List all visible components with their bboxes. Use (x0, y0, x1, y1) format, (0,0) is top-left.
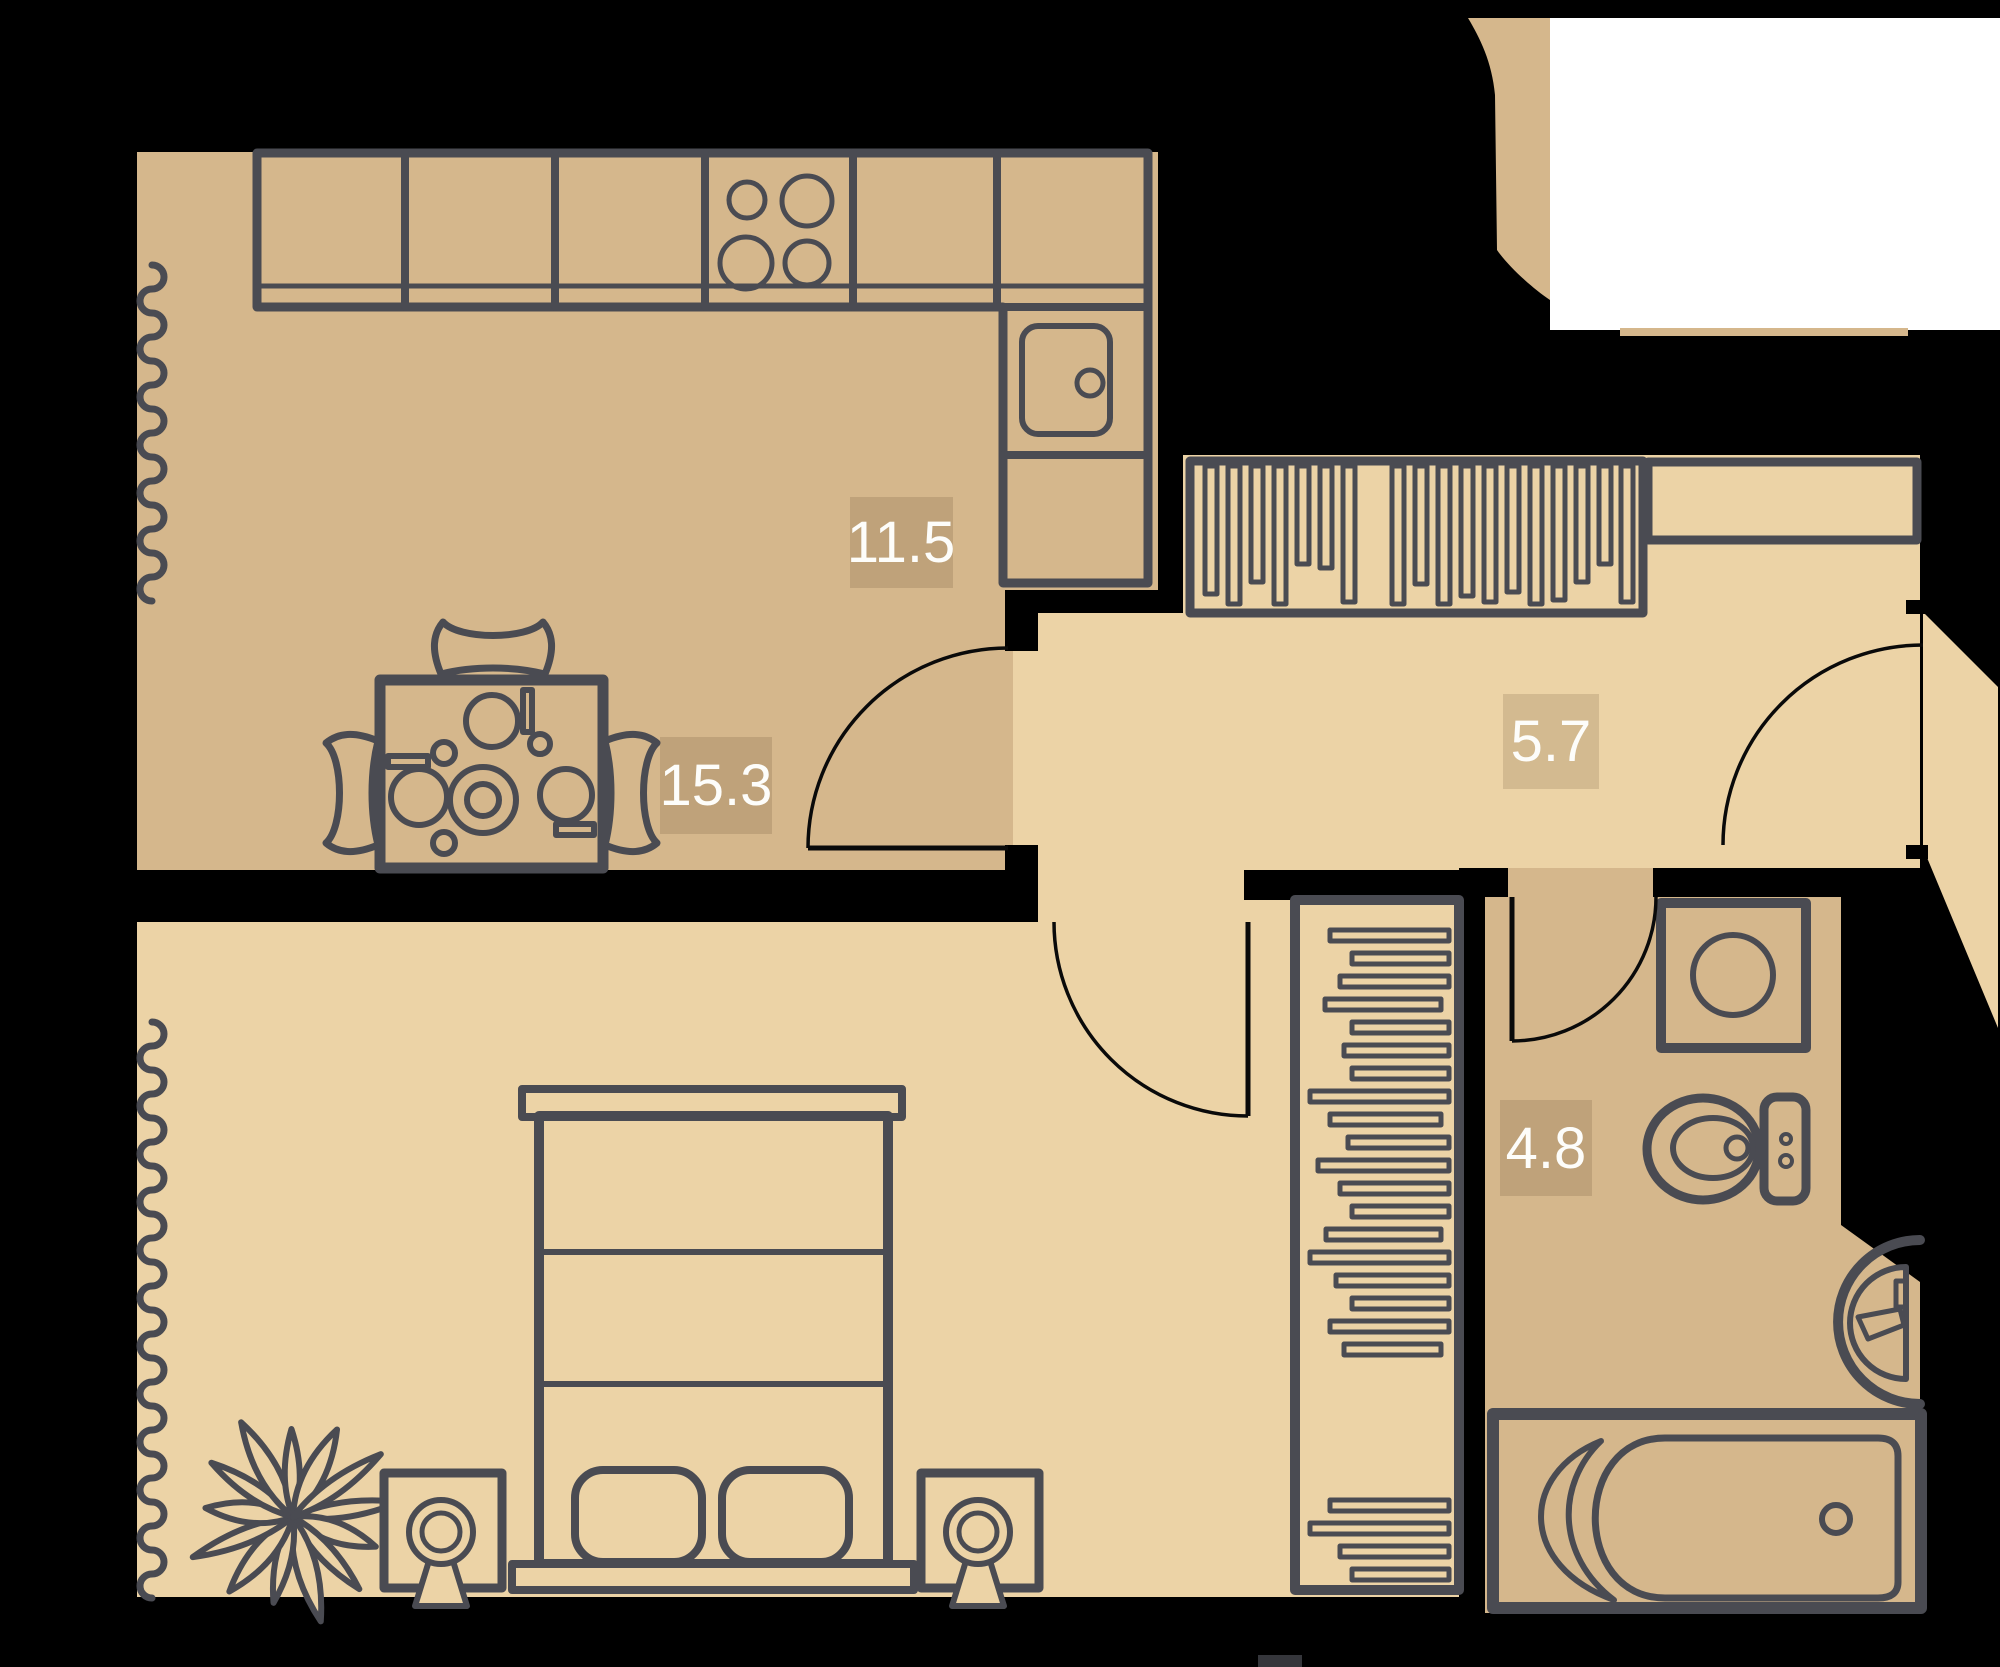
adjacent-wall-curve (1468, 18, 1550, 300)
bed-foot-bar (512, 1564, 914, 1590)
bathroom-door-threshold (1508, 868, 1653, 898)
area-value: 4.8 (1506, 1116, 1587, 1181)
area-value: 5.7 (1511, 709, 1592, 774)
nightstand-left (384, 1473, 502, 1606)
wall-kitchen-hallway (1005, 590, 1183, 613)
kitchen-door-jamb-top (1005, 613, 1038, 651)
room-label-hallway: 5.7 (1503, 694, 1599, 789)
entrance-jamb-bottom (1906, 845, 1928, 859)
area-value: 15.3 (660, 753, 773, 818)
kitchen-door-jamb-bottom (1005, 845, 1038, 872)
toilet-tank (1764, 1097, 1806, 1201)
floor-plan: 11.5 5.7 15.3 4.8 (0, 0, 2000, 1667)
wall-kitchen-bedroom (137, 870, 1038, 922)
shelving-unit (1295, 900, 1459, 1590)
room-label-bathroom: 4.8 (1500, 1100, 1592, 1196)
room-label-kitchen: 11.5 (847, 497, 956, 588)
pillow (722, 1470, 849, 1562)
nightstand-right (921, 1473, 1039, 1606)
adjacent-wall-strip (1620, 328, 1908, 336)
area-value: 11.5 (847, 510, 956, 575)
hallway-floor-ext (1037, 613, 1183, 870)
pillow (575, 1470, 702, 1562)
hallway-shelf (1648, 462, 1917, 540)
dining-table (380, 680, 603, 868)
floor-plan-page: 11.5 5.7 15.3 4.8 (0, 0, 2000, 1667)
shelving-frame (1295, 900, 1459, 1590)
hallway-floor-strip (1013, 650, 1037, 846)
bed (512, 1089, 914, 1590)
bathroom-door-jamb-left (1459, 868, 1508, 897)
adjacent-white-block (1550, 18, 2000, 330)
entrance-door-leaf (1923, 612, 1998, 1028)
adjacent-area (1468, 18, 2000, 336)
entrance-jamb-top (1906, 600, 1928, 614)
wall-hallway-bathroom (1653, 868, 1920, 897)
lamp-icon (946, 1500, 1010, 1564)
room-label-bedroom: 15.3 (660, 737, 773, 834)
wall-end-tab (1258, 1655, 1302, 1667)
lamp-icon (409, 1500, 473, 1564)
